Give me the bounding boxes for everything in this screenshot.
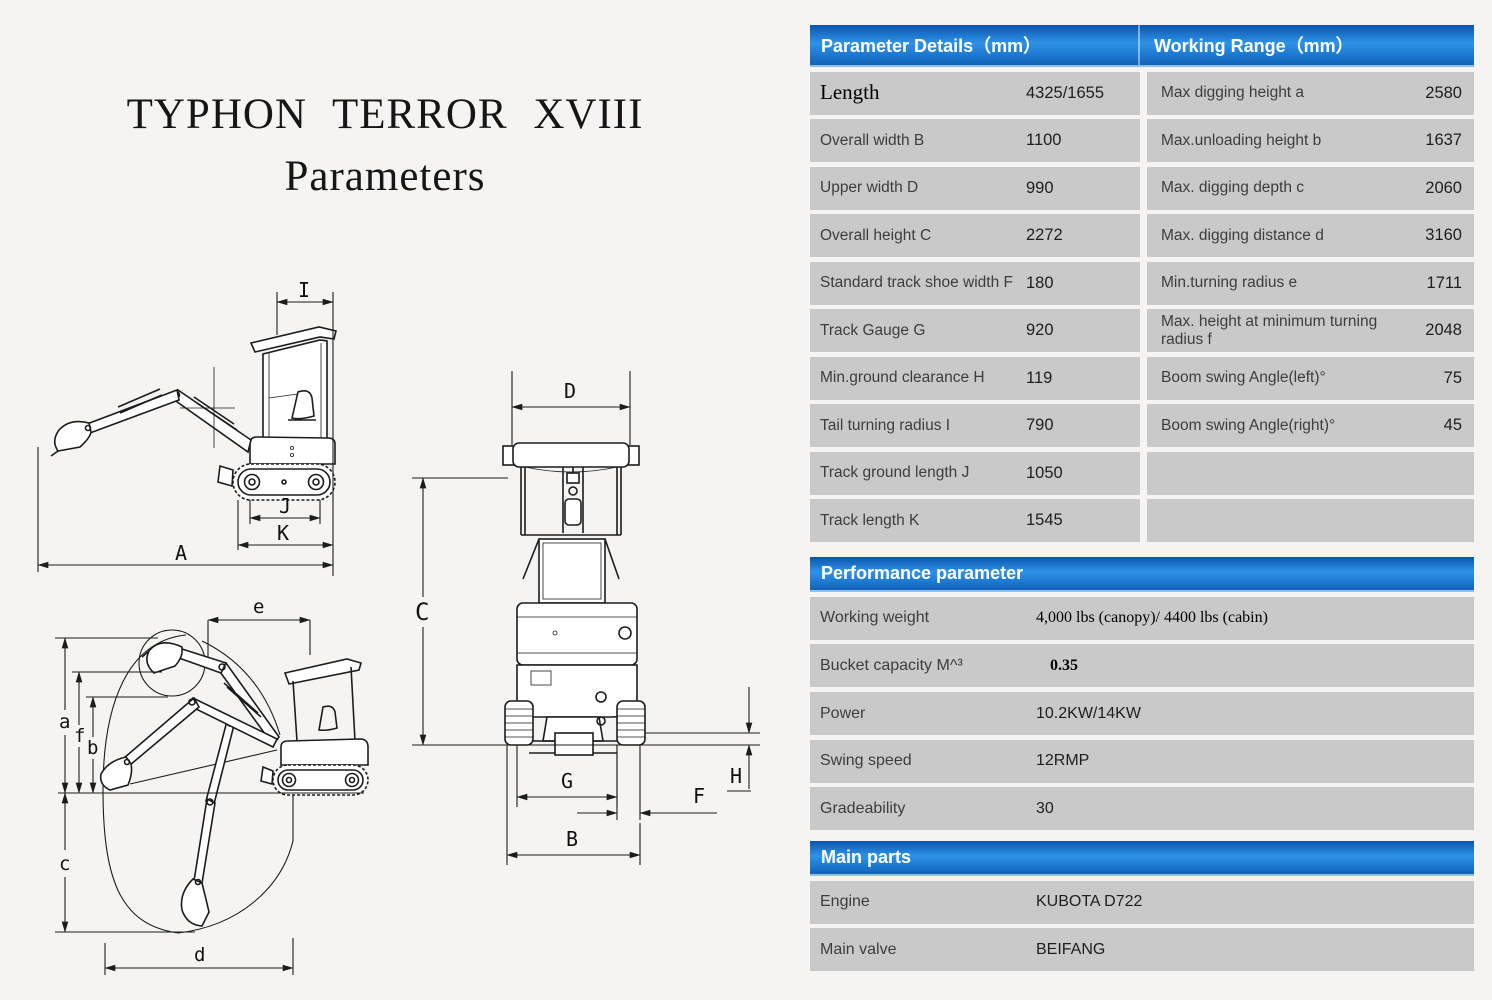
perf-label: Gradeability	[810, 800, 1036, 818]
perf-label: Power	[810, 705, 1036, 723]
title-line-2: Parameters	[60, 146, 710, 208]
param-label: Track ground length J	[810, 464, 1026, 481]
range-value: 2060	[1390, 179, 1474, 198]
param-label: Length	[810, 81, 1026, 105]
range-value: 1711	[1390, 274, 1474, 293]
param-label: Min.ground clearance H	[810, 369, 1026, 386]
dim-label-G: G	[561, 769, 573, 793]
param-label: Overall height C	[810, 227, 1026, 244]
dim-label-f: f	[74, 725, 85, 747]
param-value: 2272	[1026, 226, 1140, 245]
range-label: Boom swing Angle(right)°	[1147, 417, 1390, 434]
table-row: Swing speed 12RMP	[810, 740, 1474, 783]
range-label: Min.turning radius e	[1147, 274, 1390, 291]
param-label: Track length K	[810, 512, 1026, 529]
dim-label-J: J	[279, 494, 291, 518]
table-row: Track length K1545	[810, 499, 1474, 542]
range-label: Max.unloading height b	[1147, 132, 1390, 149]
part-value: BEIFANG	[1036, 941, 1105, 959]
main-parts-header: Main parts	[810, 841, 1474, 876]
dim-label-B: B	[566, 827, 578, 851]
dim-label-D: D	[564, 379, 576, 403]
dim-label-C: C	[415, 598, 429, 626]
range-label: Max. digging depth c	[1147, 179, 1390, 196]
param-label: Track Gauge G	[810, 322, 1026, 339]
param-label: Upper width D	[810, 179, 1026, 196]
dim-label-d: d	[194, 944, 205, 966]
range-value: 75	[1390, 369, 1474, 388]
table-row: Bucket capacity M^³ 0.35	[810, 644, 1474, 687]
range-value: 45	[1390, 416, 1474, 435]
range-label: Max. height at minimum turning radius f	[1147, 313, 1390, 348]
excavator-side-view	[51, 327, 336, 500]
perf-value: 10.2KW/14KW	[1036, 705, 1141, 723]
table-row: Standard track shoe width F180 Min.turni…	[810, 262, 1474, 305]
dim-label-F: F	[693, 784, 705, 808]
part-label: Engine	[810, 893, 1036, 911]
table-row: Overall height C2272 Max. digging distan…	[810, 214, 1474, 257]
table-row: Working weight 4,000 lbs (canopy)/ 4400 …	[810, 597, 1474, 640]
param-value: 180	[1026, 274, 1140, 293]
table-row: Main valve BEIFANG	[810, 928, 1474, 971]
main-parts-table: Main parts Engine KUBOTA D722 Main valve…	[810, 841, 1474, 971]
param-value: 1100	[1026, 131, 1140, 150]
param-value: 4325/1655	[1026, 84, 1140, 103]
range-value: 2048	[1390, 321, 1474, 340]
table-row: Gradeability 30	[810, 787, 1474, 830]
part-value: KUBOTA D722	[1036, 893, 1142, 911]
table-row: Track ground length J1050	[810, 452, 1474, 495]
perf-value: 30	[1036, 800, 1054, 818]
param-value: 1545	[1026, 511, 1140, 530]
performance-table: Performance parameter Working weight 4,0…	[810, 557, 1474, 830]
table-row: Overall width B1100 Max.unloading height…	[810, 119, 1474, 162]
param-label: Tail turning radius I	[810, 417, 1026, 434]
dim-label-a: a	[59, 711, 70, 733]
param-value: 920	[1026, 321, 1140, 340]
table-row: Power 10.2KW/14KW	[810, 692, 1474, 735]
table-row: Min.ground clearance H119 Boom swing Ang…	[810, 357, 1474, 400]
param-value: 990	[1026, 179, 1140, 198]
range-value: 2580	[1390, 84, 1474, 103]
part-label: Main valve	[810, 941, 1036, 959]
title-line-1: TYPHON TERROR XVIII	[60, 84, 710, 146]
table-row: Upper width D990 Max. digging depth c206…	[810, 167, 1474, 210]
dim-label-I: I	[298, 280, 310, 302]
performance-header: Performance parameter	[810, 557, 1474, 592]
working-range-diagram: e a f b c d	[30, 595, 370, 1000]
dimension-table: Parameter Details（mm） Working Range（mm） …	[810, 25, 1474, 542]
param-value: 1050	[1026, 464, 1140, 483]
table-row: Track Gauge G920 Max. height at minimum …	[810, 309, 1474, 352]
perf-value: 12RMP	[1036, 752, 1089, 770]
perf-label: Swing speed	[810, 752, 1036, 770]
range-label: Boom swing Angle(left)°	[1147, 369, 1390, 386]
dimension-table-header: Parameter Details（mm） Working Range（mm）	[810, 25, 1474, 67]
range-label: Max digging height a	[1147, 84, 1390, 101]
header-working-range: Working Range（mm）	[1140, 25, 1467, 65]
excavator-front-view	[503, 443, 645, 755]
table-row: Engine KUBOTA D722	[810, 881, 1474, 924]
perf-label: Bucket capacity M^³	[810, 657, 1036, 675]
dim-label-H: H	[730, 764, 742, 788]
param-value: 119	[1026, 369, 1140, 388]
digging-arm-position	[181, 720, 234, 926]
param-value: 790	[1026, 416, 1140, 435]
dim-label-b: b	[87, 737, 98, 759]
header-parameter-details: Parameter Details（mm）	[810, 25, 1140, 65]
table-row: Tail turning radius I790 Boom swing Angl…	[810, 404, 1474, 447]
dim-label-e: e	[253, 596, 264, 618]
page-title: TYPHON TERROR XVIII Parameters	[60, 84, 710, 208]
param-label: Overall width B	[810, 132, 1026, 149]
spec-sheet-page: TYPHON TERROR XVIII Parameters	[0, 0, 1492, 1000]
param-label: Standard track shoe width F	[810, 274, 1026, 291]
range-label: Max. digging distance d	[1147, 227, 1390, 244]
perf-value: 4,000 lbs (canopy)/ 4400 lbs (cabin)	[1036, 609, 1268, 627]
table-row: Length4325/1655 Max digging height a2580	[810, 72, 1474, 115]
perf-label: Working weight	[810, 609, 1036, 627]
front-view-diagram: D C G F B H	[405, 365, 785, 880]
dim-label-c: c	[59, 853, 70, 875]
excavator-range-view	[101, 643, 368, 795]
dim-label-K: K	[277, 521, 289, 545]
perf-value: 0.35	[1036, 657, 1078, 675]
dim-label-A: A	[175, 541, 187, 565]
range-value: 3160	[1390, 226, 1474, 245]
range-value: 1637	[1390, 131, 1474, 150]
side-view-diagram: I J K A	[30, 280, 350, 590]
